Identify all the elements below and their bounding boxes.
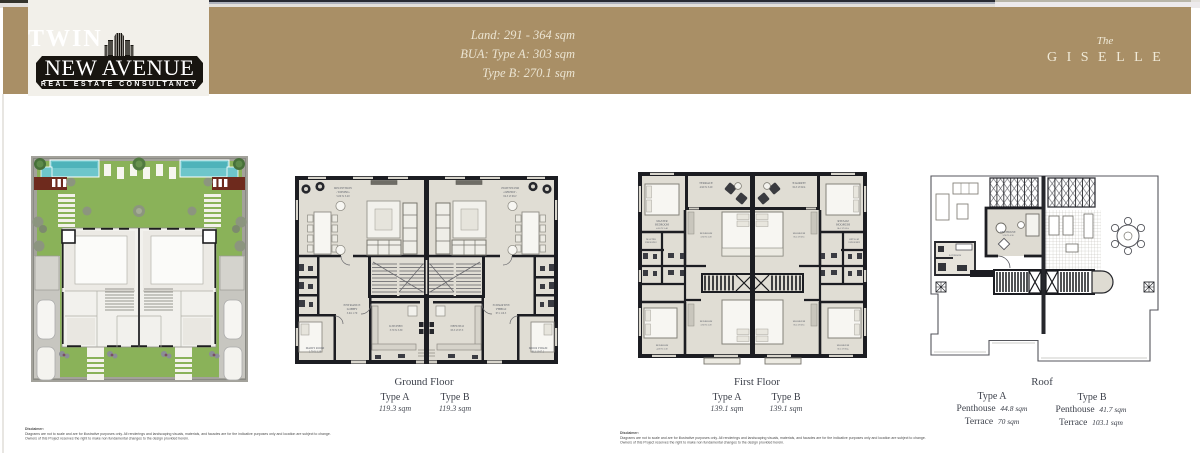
svg-text:BATHROOM: BATHROOM <box>949 254 961 257</box>
svg-text:3.90 X 4.30: 3.90 X 4.30 <box>1002 234 1014 237</box>
